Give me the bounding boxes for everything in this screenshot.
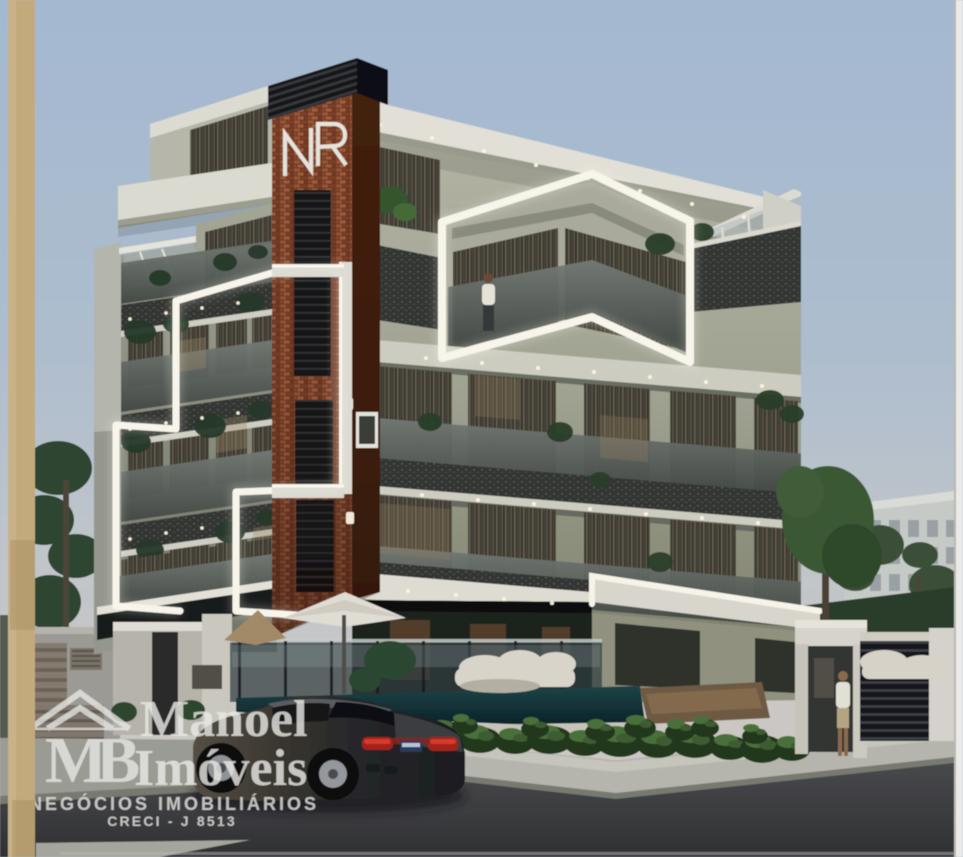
svg-text:CRECI - J 8513: CRECI - J 8513 — [107, 813, 237, 829]
svg-text:NEGÓCIOS IMOBILIÁRIOS: NEGÓCIOS IMOBILIÁRIOS — [29, 793, 319, 814]
svg-text:Imóveis: Imóveis — [134, 740, 307, 797]
svg-text:MB: MB — [45, 724, 139, 797]
